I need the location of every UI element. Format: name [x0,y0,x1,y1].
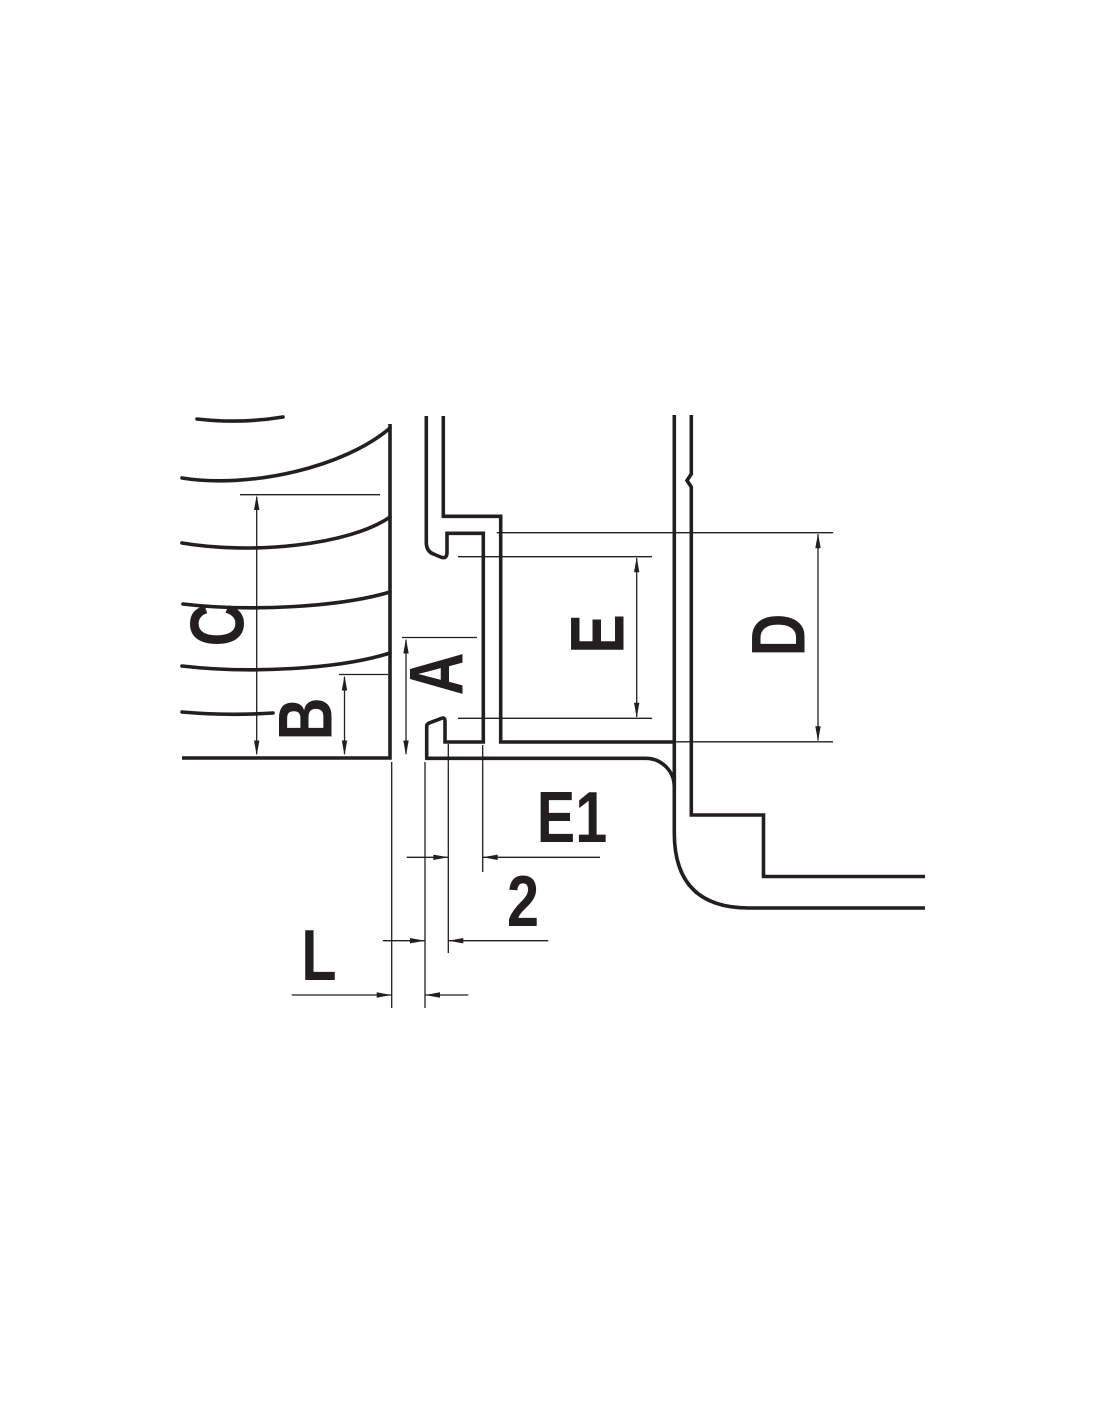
dim-label-L: L [301,915,336,996]
dim-label-2: 2 [507,861,539,942]
arrowhead-E-top [634,557,639,572]
dim-label-D: D [737,614,822,657]
arrowhead-E1-left [433,855,448,860]
arrowhead-E-bottom [634,703,639,718]
arrowhead-E1-right [483,855,498,860]
spring-curve-5 [182,712,273,714]
arrowhead-L-left [377,992,392,997]
sleeve-clip-outline [426,416,483,758]
dim-label-C: C [176,604,261,647]
arrowhead-L-right [425,992,440,997]
dimension-labels: C B A E D E1 2 L [176,604,822,996]
dim-label-A: A [395,653,480,696]
spring-curve-4 [182,653,390,670]
housing-outer-wall [674,415,925,908]
arrowhead-2-right [448,938,463,943]
dim-label-B: B [264,698,349,741]
arrowhead-B-bottom [342,741,347,756]
arrowhead-B-top [342,676,347,691]
technical-drawing-page: C B A E D E1 2 L [0,0,1100,1422]
arrowhead-2-left [410,938,425,943]
dim-label-E: E [556,614,641,654]
spring-curve-2 [182,517,390,548]
section-drawing-canvas: C B A E D E1 2 L [0,0,1100,1422]
arrowhead-C-top [254,495,259,510]
arrowhead-C-bottom [254,741,259,756]
arrowhead-A-top [403,639,408,654]
arrowhead-A-bottom [403,741,408,756]
spring-curve-top-arc [197,417,283,421]
dim-label-E1: E1 [537,777,607,858]
arrowhead-D-top [815,533,820,548]
arrowhead-D-bottom [815,726,820,741]
spring-curve-1 [182,428,390,481]
